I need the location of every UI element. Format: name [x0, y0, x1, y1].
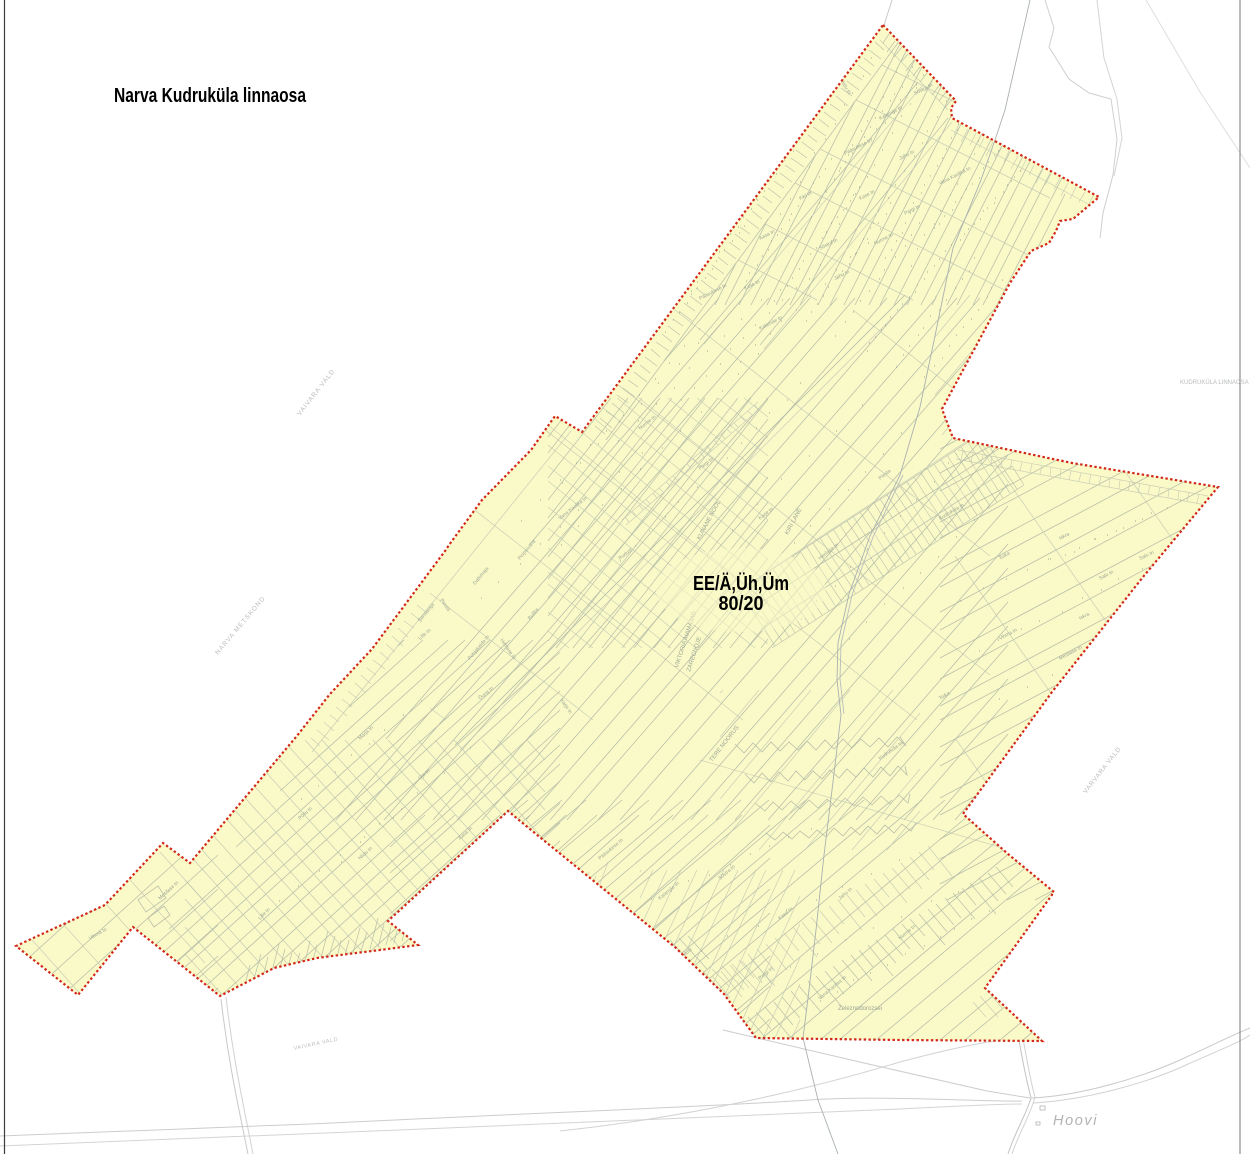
svg-text:KUDRUKÜLA LINNAOSA: KUDRUKÜLA LINNAOSA [1180, 379, 1249, 386]
svg-text:Narva Kudruküla linnaosa: Narva Kudruküla linnaosa [114, 85, 307, 107]
svg-text:EE/Ä,Üh,Üm: EE/Ä,Üh,Üm [693, 572, 789, 595]
svg-text:Hoovi: Hoovi [1053, 1113, 1098, 1129]
svg-text:80/20: 80/20 [719, 593, 764, 615]
svg-text:Zeleznodorozsei: Zeleznodorozsei [838, 1006, 882, 1012]
